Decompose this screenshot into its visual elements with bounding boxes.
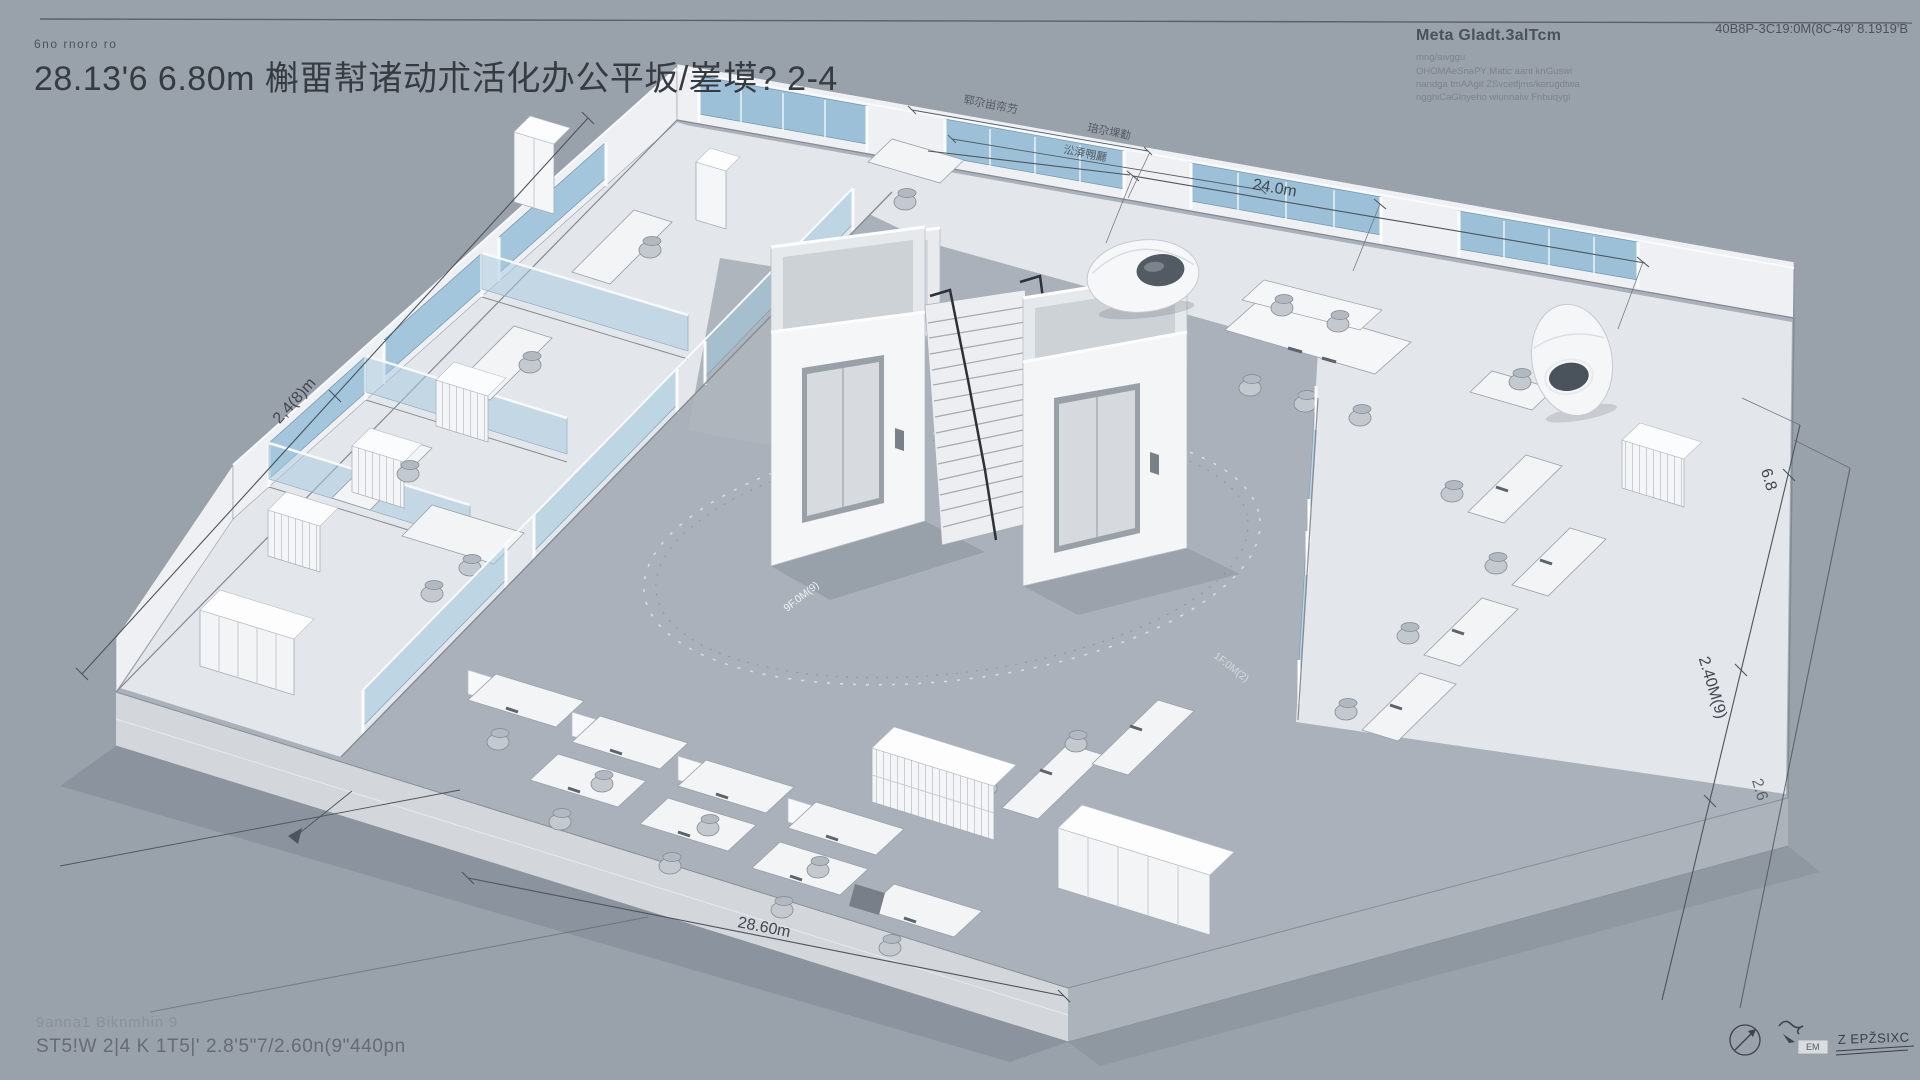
meta-line: OHOMAeSnaPY Matic aant knGuswi	[1416, 66, 1572, 77]
page-title: 28.13'6 6.80m 槲畱幇诸动朮活化办公平坂/嵳塻? 2-4	[34, 60, 838, 98]
footer-line1: 9anna1 Biknmhin 9	[36, 1014, 178, 1031]
title-eyebrow: 6no rnoro ro	[34, 37, 117, 51]
signature-block: EM Z EPŽSIXC	[1730, 1021, 1914, 1055]
title-block: 6no rnoro ro 28.13'6 6.80m 槲畱幇诸动朮活化办公平坂/…	[34, 21, 1908, 98]
meta-heading: Meta Gladt.3alTcm	[1416, 27, 1561, 44]
blueprint-canvas: 24.0m 28.60m 2,4(8)m 6.8 2.40M(9) 2.6 郓尕…	[0, 0, 1920, 1080]
footer-line2: ST5!W 2|4 K 1T5|' 2.8'5"7/2.60n(9"440pn	[36, 1036, 406, 1057]
meta-block: Meta Gladt.3alTcm mng/awggu OHOMAeSnaPY …	[1416, 27, 1580, 103]
elevator-shaft-right	[1023, 272, 1187, 586]
signature-squiggle	[1779, 1021, 1803, 1034]
call-panel	[1150, 452, 1159, 475]
meta-line: ngghiCaGlnyeho wiunnaiw Fnbuqygi	[1416, 92, 1570, 103]
meta-line: nandga tmAAgit ZSvcetfjms/kerugdtwa	[1416, 79, 1580, 90]
signature-text: Z EPŽSIXC	[1838, 1030, 1910, 1047]
dim-note-a: 郓尕畄帟芀	[962, 92, 1019, 116]
top-rule	[40, 19, 1912, 23]
meta-line: mng/awggu	[1416, 52, 1465, 63]
call-panel	[895, 428, 904, 451]
footer-block: 9anna1 Biknmhin 9 ST5!W 2|4 K 1T5|' 2.8'…	[36, 1014, 406, 1057]
corner-note: 40B8P-3C19:0M(8C-49' 8.1919'B	[1715, 21, 1908, 36]
floor-plan-drawing: 24.0m 28.60m 2,4(8)m 6.8 2.40M(9) 2.6 郓尕…	[0, 0, 1920, 1080]
elevator-shaft-left	[771, 227, 925, 566]
stamp-box-label: EM	[1806, 1042, 1820, 1052]
